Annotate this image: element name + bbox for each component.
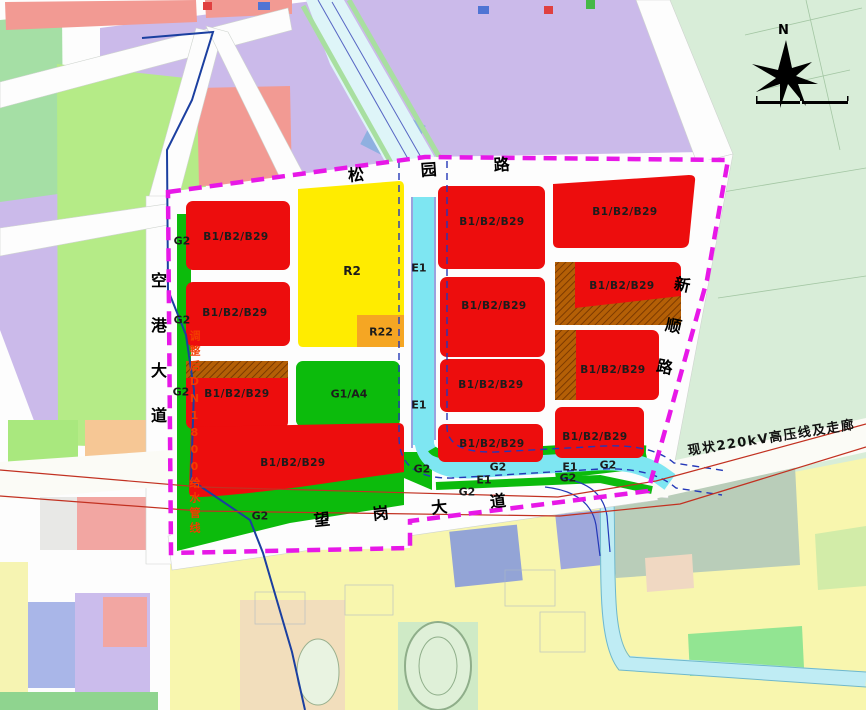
parcel-label-green: G2 (174, 315, 191, 326)
parcel-label-commercial: B1/B2/B29 (592, 207, 657, 218)
planning-map: B1/B2/B29 B1/B2/B29 B1/B2/B29 B1/B2/B29 … (0, 0, 866, 710)
annotation-water-pipeline: 调整后DN1800给水管线 (189, 330, 200, 537)
parcel-label-commercial: B1/B2/B29 (459, 217, 524, 228)
parcel-label-green: G2 (490, 462, 507, 473)
basemap-graphics (0, 0, 866, 710)
parcel-label-commercial: B1/B2/B29 (562, 432, 627, 443)
parcel-label-park: G1/A4 (331, 389, 368, 400)
parcel-label-green: G2 (560, 473, 577, 484)
parcel-label-waterway: E1 (476, 475, 491, 486)
parcel-label-green: G2 (600, 460, 617, 471)
parcel-label-commercial: B1/B2/B29 (204, 389, 269, 400)
road-label-konggang: 空港大道 (149, 272, 165, 452)
parcel-label-commercial: B1/B2/B29 (589, 281, 654, 292)
parcel-label-green: G2 (174, 236, 191, 247)
parcel-label-commercial: B1/B2/B29 (458, 380, 523, 391)
parcel-label-residential-sub: R22 (369, 327, 393, 338)
parcel-label-commercial: B1/B2/B29 (580, 365, 645, 376)
parcel-label-residential: R2 (343, 265, 361, 277)
parcel-label-commercial: B1/B2/B29 (202, 308, 267, 319)
parcel-label-waterway: E1 (411, 263, 426, 274)
parcel-label-green: G2 (252, 511, 269, 522)
parcel-label-commercial: B1/B2/B29 (260, 458, 325, 469)
compass-north-label: N (778, 24, 789, 37)
parcel-label-commercial: B1/B2/B29 (459, 439, 524, 450)
parcel-label-green: G2 (414, 464, 431, 475)
parcel-label-green: G2 (173, 387, 190, 398)
parcel-label-commercial: B1/B2/B29 (461, 301, 526, 312)
commercial-parcels (186, 175, 695, 497)
parcel-label-waterway: E1 (411, 400, 426, 411)
parcel-label-waterway: E1 (562, 462, 577, 473)
parcel-label-commercial: B1/B2/B29 (203, 232, 268, 243)
